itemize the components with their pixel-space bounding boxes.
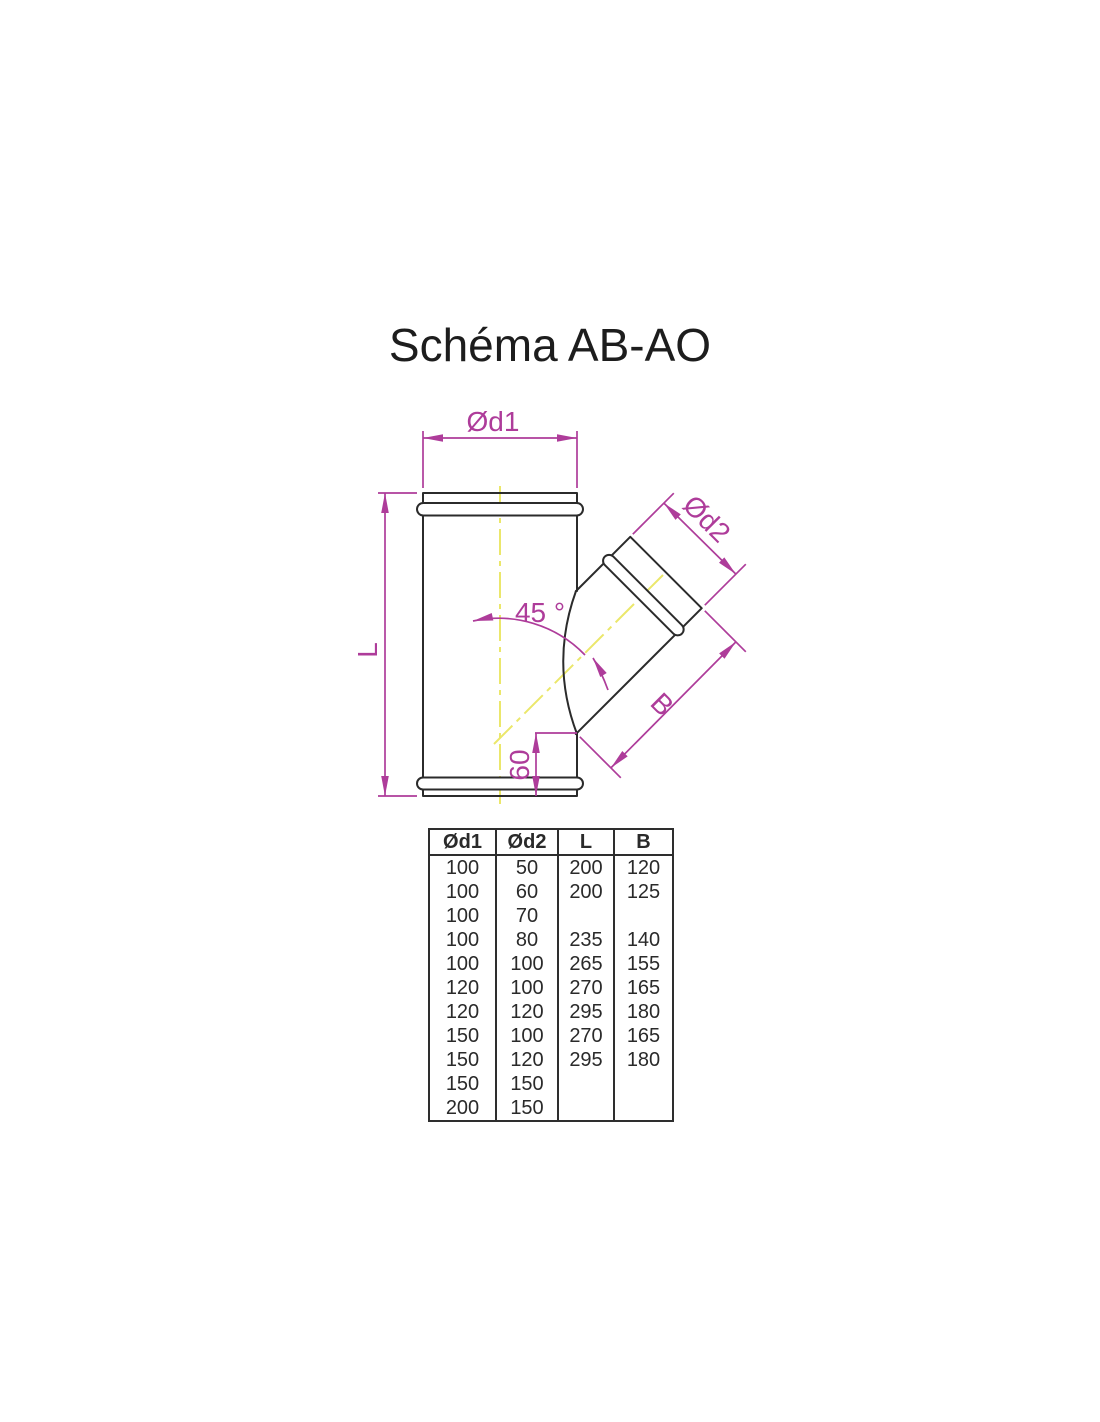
angle-label: 45 ° — [515, 597, 565, 628]
table-cell: 200 — [558, 880, 614, 904]
table-cell: 165 — [614, 976, 673, 1000]
bottom-bead-ring — [417, 778, 583, 790]
table-cell: 180 — [614, 1048, 673, 1072]
table-cell: 295 — [558, 1048, 614, 1072]
table-cell: 50 — [496, 855, 558, 880]
table-cell: 120 — [496, 1048, 558, 1072]
table-row: 150 120 295 180 — [429, 1048, 673, 1072]
table-cell: 125 — [614, 880, 673, 904]
table-cell — [558, 904, 614, 928]
table-cell — [558, 1096, 614, 1121]
table-row: 100 100 265 155 — [429, 952, 673, 976]
d2-label: Ød2 — [677, 489, 736, 548]
table-cell: 295 — [558, 1000, 614, 1024]
table-cell: 120 — [429, 1000, 496, 1024]
table-row: 120 120 295 180 — [429, 1000, 673, 1024]
table-cell: 150 — [496, 1072, 558, 1096]
table-row: 120 100 270 165 — [429, 976, 673, 1000]
table-cell: 200 — [429, 1096, 496, 1121]
table-cell: 270 — [558, 976, 614, 1000]
table-cell — [614, 1096, 673, 1121]
header-cell-b: B — [614, 829, 673, 855]
table-cell: 100 — [496, 976, 558, 1000]
d2-extension-upper — [633, 493, 674, 534]
angle-arrow-leader — [593, 658, 608, 690]
table-cell: 140 — [614, 928, 673, 952]
branch-intersection-curve — [563, 591, 577, 734]
table-cell: 70 — [496, 904, 558, 928]
table-cell: 100 — [429, 855, 496, 880]
table-row: 100 60 200 125 — [429, 880, 673, 904]
table-cell: 100 — [429, 928, 496, 952]
table-header-row: Ød1 Ød2 L B — [429, 829, 673, 855]
table-cell: 100 — [496, 952, 558, 976]
dimension-d1 — [423, 431, 577, 488]
dimensions-table: Ød1 Ød2 L B 100 50 200 120 100 60 200 12 — [428, 828, 674, 1122]
offset-label: 60 — [504, 749, 535, 780]
table-cell — [558, 1072, 614, 1096]
table-row: 150 100 270 165 — [429, 1024, 673, 1048]
table-cell: 100 — [429, 904, 496, 928]
table-cell: 60 — [496, 880, 558, 904]
table-cell: 150 — [429, 1072, 496, 1096]
table-cell: 165 — [614, 1024, 673, 1048]
table-cell: 265 — [558, 952, 614, 976]
d1-label: Ød1 — [467, 406, 520, 437]
page: Schéma AB-AO — [0, 0, 1100, 1422]
table-cell: 120 — [614, 855, 673, 880]
b-extension-lower — [580, 737, 621, 778]
table-cell — [614, 1072, 673, 1096]
pipe-tee-schematic: Ød1 L Ød2 B 45 ° — [0, 0, 1100, 1422]
table-cell: 80 — [496, 928, 558, 952]
table-cell: 155 — [614, 952, 673, 976]
table-cell — [614, 904, 673, 928]
dimension-l — [378, 493, 417, 796]
b-label: B — [645, 687, 680, 722]
d2-extension-lower — [705, 564, 746, 605]
table-cell: 120 — [429, 976, 496, 1000]
table-cell: 150 — [496, 1096, 558, 1121]
table-cell: 100 — [496, 1024, 558, 1048]
table-row: 100 50 200 120 — [429, 855, 673, 880]
dimensions-table-container: Ød1 Ød2 L B 100 50 200 120 100 60 200 12 — [428, 828, 674, 1122]
header-cell-d1: Ød1 — [429, 829, 496, 855]
table-cell: 150 — [429, 1024, 496, 1048]
branch-bead-ring — [601, 552, 687, 638]
l-label: L — [352, 642, 383, 658]
table-row: 200 150 — [429, 1096, 673, 1121]
header-cell-d2: Ød2 — [496, 829, 558, 855]
dimension-angle — [473, 618, 608, 690]
header-cell-l: L — [558, 829, 614, 855]
table-cell: 100 — [429, 880, 496, 904]
table-row: 150 150 — [429, 1072, 673, 1096]
table-row: 100 70 — [429, 904, 673, 928]
table-cell: 180 — [614, 1000, 673, 1024]
table-cell: 235 — [558, 928, 614, 952]
b-extension-upper — [705, 611, 746, 652]
table-cell: 120 — [496, 1000, 558, 1024]
table-cell: 100 — [429, 952, 496, 976]
top-bead-ring — [417, 503, 583, 516]
table-cell: 200 — [558, 855, 614, 880]
table-cell: 270 — [558, 1024, 614, 1048]
table-row: 100 80 235 140 — [429, 928, 673, 952]
table-cell: 150 — [429, 1048, 496, 1072]
